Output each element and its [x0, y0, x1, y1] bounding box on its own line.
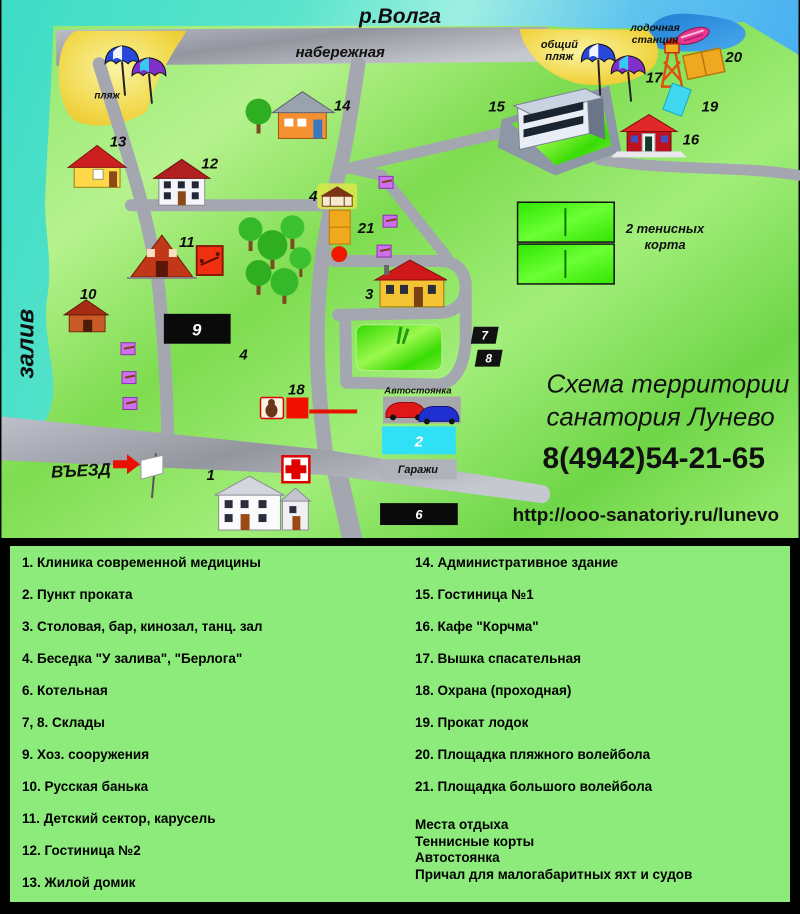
legend-right-column: 14. Административное здание15. Гостиница…: [415, 556, 652, 812]
marker-20: 20: [724, 49, 742, 66]
legend-item: Автостоянка: [415, 851, 692, 865]
website-url: http://ooo-sanatoriy.ru/lunevo: [513, 505, 779, 526]
marker-18: 18: [288, 382, 305, 399]
marker-11: 11: [179, 234, 195, 251]
legend-item: 4. Беседка "У залива", "Берлога": [22, 652, 262, 666]
marker-13: 13: [110, 133, 127, 150]
bay-label: залив: [12, 309, 39, 379]
legend-item: Причал для малогабаритных яхт и судов: [415, 868, 692, 882]
pavilion-upper: [317, 183, 357, 209]
parking-area: [383, 397, 461, 425]
marker-15: 15: [488, 99, 505, 116]
legend-item: 20. Площадка пляжного волейбола: [415, 748, 652, 762]
legend-item: 14. Административное здание: [415, 556, 652, 570]
marker-4b: 4: [238, 347, 248, 364]
map-title-line1: Схема территории: [546, 371, 789, 399]
sanatorium-map-page: р.Волга набережная пляж общий пляж лодоч…: [0, 0, 800, 914]
legend-item: 15. Гостиница №1: [415, 588, 652, 602]
territory-map: р.Волга набережная пляж общий пляж лодоч…: [0, 0, 800, 538]
public-beach-label-1: общий: [541, 39, 578, 51]
legend-section: 1. Клиника современной медицины2. Пункт …: [0, 538, 800, 914]
marker-12: 12: [201, 155, 218, 172]
entrance-label: ВЪЕЗД: [51, 460, 112, 482]
legend-item: 2. Пункт проката: [22, 588, 262, 602]
legend-item: 21. Площадка большого волейбола: [415, 780, 652, 794]
marker-9: 9: [192, 321, 202, 340]
marker-16: 16: [683, 131, 700, 148]
marker-2: 2: [414, 433, 424, 450]
boat-station-label-2: станция: [632, 35, 679, 46]
legend-item: 19. Прокат лодок: [415, 716, 652, 730]
parking-label: Автостоянка: [383, 386, 451, 397]
embankment-label: набережная: [296, 44, 385, 61]
legend-left-column: 1. Клиника современной медицины2. Пункт …: [22, 556, 262, 908]
marker-17: 17: [646, 70, 663, 87]
carousel-icon: [197, 246, 223, 275]
marker-3: 3: [365, 286, 374, 303]
marker-10: 10: [80, 286, 97, 303]
beach-label: пляж: [94, 91, 120, 102]
legend-item: 1. Клиника современной медицины: [22, 556, 262, 570]
marker-14: 14: [334, 98, 351, 115]
river-label: р.Волга: [358, 5, 441, 28]
marker-21: 21: [357, 220, 375, 237]
legend-item: 17. Вышка спасательная: [415, 652, 652, 666]
legend-item: 13. Жилой домик: [22, 876, 262, 890]
legend-extra-column: Места отдыхаТеннисные кортыАвтостоянкаПр…: [415, 818, 692, 884]
legend-item: 16. Кафе "Корчма": [415, 620, 652, 634]
marker-6: 6: [415, 507, 423, 522]
legend-item: 10. Русская банька: [22, 780, 262, 794]
legend-item: 18. Охрана (проходная): [415, 684, 652, 698]
red-circle-marker: [331, 246, 347, 262]
legend-box: 1. Клиника современной медицины2. Пункт …: [10, 546, 790, 902]
phone-number: 8(4942)54-21-65: [542, 442, 765, 475]
tennis-label-1: 2 тенисных: [625, 221, 705, 236]
legend-item: 11. Детский сектор, карусель: [22, 812, 262, 826]
legend-item: Места отдыха: [415, 818, 692, 832]
garages-label: Гаражи: [398, 464, 438, 476]
marker-19: 19: [702, 99, 719, 116]
legend-item: 9. Хоз. сооружения: [22, 748, 262, 762]
legend-item: 6. Котельная: [22, 684, 262, 698]
public-beach-label-2: пляж: [545, 51, 574, 63]
map-title-line2: санатория Лунево: [546, 403, 774, 431]
legend-item: Теннисные корты: [415, 835, 692, 849]
marker-1: 1: [207, 467, 215, 484]
tennis-label-2: корта: [644, 237, 685, 252]
legend-item: 3. Столовая, бар, кинозал, танц. зал: [22, 620, 262, 634]
marker-8: 8: [485, 352, 492, 366]
boat-station-label-1: лодочная: [629, 23, 679, 34]
legend-item: 7, 8. Склады: [22, 716, 262, 730]
legend-item: 12. Гостиница №2: [22, 844, 262, 858]
marker-4a: 4: [308, 188, 318, 205]
